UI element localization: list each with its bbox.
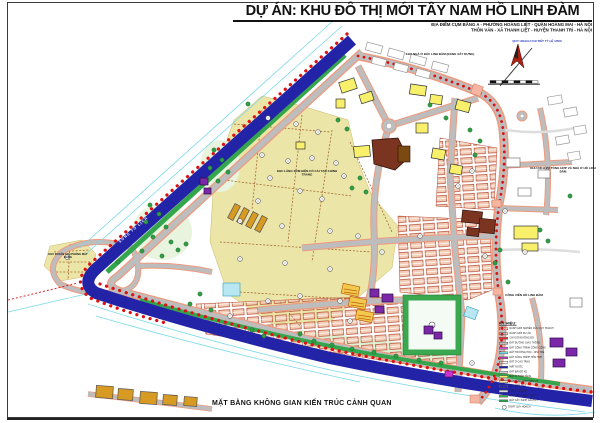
annotation-west-area: KHU DI DÂN GIẢI PHÓNG MẶT BẰNG [44, 253, 92, 259]
legend-swatch [499, 400, 508, 403]
legend-swatch [499, 376, 508, 379]
legend-label: CHỈ GIỚI ĐƯỜNG ĐỎ [510, 337, 534, 340]
legend-label: RANH GIỚI DỰ ÁN [510, 332, 531, 335]
plan-sheet: SÔNG TÔ LỊCH SÔNG TÔ LỊCH SÔNG TÔ LỊCH D… [0, 0, 600, 423]
legend-label: ĐẤT BÃI ĐỖ XE [510, 371, 527, 374]
legend-label: ĐẤT BIỆT THỰ [510, 385, 527, 388]
legend-label: MẶT NƯỚC [510, 366, 523, 369]
legend-swatch [499, 390, 508, 393]
legend-label: ĐẤT CÂY XANH CÁCH LY [510, 400, 539, 403]
legend-swatch [499, 352, 508, 355]
legend-label: ĐẤT LÀNG XÓM HIỆN CÓ [510, 380, 539, 383]
legend-swatch [499, 356, 508, 359]
sheet-bottom-rule [7, 418, 593, 420]
legend-label: ĐẤT CÔNG TRÌNH CÔNG CỘNG [510, 347, 546, 350]
subtitle-line-2: THÔN VĂN - XÃ THANH LIỆT - HUYỆN THANH T… [233, 28, 592, 34]
legend-label: RANH GIỚI NGHIÊN CỨU QUY HOẠCH [510, 328, 554, 331]
legend-swatch [499, 342, 508, 345]
legend-swatch [499, 380, 508, 383]
legend-label: ĐẤT ĐƯỜNG GIAO THÔNG [510, 342, 541, 345]
legend-label: ĐẤT Ở CAO TẦNG [510, 361, 531, 364]
page-title: DỰ ÁN: KHU ĐÔ THỊ MỚI TÂY NAM HỒ LINH ĐÀ… [233, 3, 592, 19]
annotation-north-area: KHU NHÀ Ở BẮC LINH ĐÀM (ĐANG XÂY DỰNG) [396, 53, 484, 57]
legend-swatch [499, 395, 508, 398]
legend-label: ĐẤT CÔNG TRÌNH HỖN HỢP [510, 356, 543, 359]
legend-swatch [499, 361, 508, 364]
legend-swatch [499, 385, 508, 388]
legend-label: ĐẤT TRƯỜNG HỌC - NHÀ TRẺ [510, 352, 545, 355]
drawing-caption: MẶT BẰNG KHÔNG GIAN KIẾN TRÚC CẢNH QUAN [212, 400, 392, 407]
legend-item: ĐẤT CÂY XANH CÁCH LY [499, 398, 549, 403]
legend-label: ĐẤT CÂY XANH - TDTT [510, 395, 536, 398]
legend-swatch [499, 328, 508, 331]
legend-note: Ô ĐẤT QUY HOẠCH [499, 405, 549, 410]
legend-swatch [499, 371, 508, 374]
legend-note-label: Ô ĐẤT QUY HOẠCH [508, 406, 530, 409]
legend-swatch [499, 366, 508, 369]
legend-swatch [499, 337, 508, 340]
legend-label: ĐẤT CƠ QUAN [510, 390, 527, 393]
lot-circle-icon [502, 405, 507, 410]
legend-rows: RANH GIỚI NGHIÊN CỨU QUY HOẠCHRANH GIỚI … [499, 327, 549, 404]
subtitle: ĐỊA ĐIỂM CỤM BẰNG A - PHƯỜNG HOÀNG LIỆT … [233, 22, 592, 33]
legend-swatch [499, 347, 508, 350]
annotation-east-area: KHU DỊCH VỤ TỔNG HỢP VÀ NHÀ Ở HỒ LINH ĐÀ… [527, 167, 599, 174]
legend-label: ĐẤT Ở THẤP TẦNG [510, 376, 532, 379]
annotation-drawing-note: QUY HOẠCH CHI TIẾT TỶ LỆ 1/500 [497, 40, 577, 44]
annotation-village-area: KHU LÀNG XÓM HIỆN CÓ CẢI TẠO CHỈNH TRANG [276, 170, 338, 177]
legend-swatch [499, 332, 508, 335]
annotation-southeast-area: CÔNG VIÊN HỒ LINH ĐÀM [492, 294, 556, 298]
legend: KÝ HIỆU: RANH GIỚI NGHIÊN CỨU QUY HOẠCHR… [499, 321, 549, 409]
legend-title: KÝ HIỆU: [499, 321, 549, 326]
